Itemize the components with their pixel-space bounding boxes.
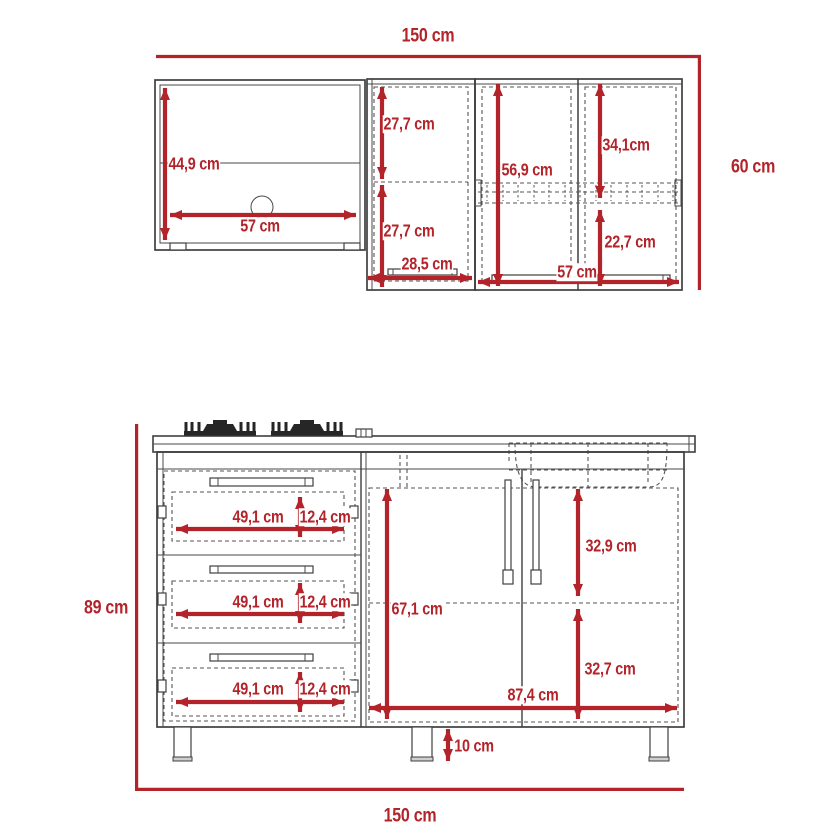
dim-upper-mid-bottom: 27,7 cm bbox=[383, 222, 436, 240]
dim-leg-height: 10 cm bbox=[453, 737, 494, 755]
countertop bbox=[153, 436, 695, 452]
dim-upper-left-height: 44,9 cm bbox=[168, 155, 221, 173]
drawer-handle bbox=[210, 478, 313, 486]
dim-upper-mid-width: 28,5 cm bbox=[401, 255, 454, 273]
dim-drawer2-height: 12,4 cm bbox=[299, 593, 352, 611]
dim-doors-top: 32,9 cm bbox=[585, 537, 638, 555]
dim-upper-right-top: 34,1cm bbox=[602, 136, 651, 154]
dim-drawer2-width: 49,1 cm bbox=[232, 593, 285, 611]
dim-lower-total-width: 150 cm bbox=[383, 806, 437, 826]
dim-upper-total-height: 60 cm bbox=[730, 157, 776, 177]
dim-upper-mid-top: 27,7 cm bbox=[383, 115, 436, 133]
dim-drawer1-height: 12,4 cm bbox=[299, 508, 352, 526]
door-handle bbox=[505, 480, 511, 572]
dim-lower-total-height: 89 cm bbox=[83, 598, 129, 618]
door-handle bbox=[533, 480, 539, 572]
dim-upper-left-width: 57 cm bbox=[239, 217, 280, 235]
cooktop bbox=[184, 420, 372, 437]
dim-upper-total-width: 150 cm bbox=[401, 26, 455, 46]
drawer-handle bbox=[210, 566, 313, 573]
dim-upper-right-height: 56,9 cm bbox=[501, 161, 554, 179]
cabinet-legs bbox=[173, 727, 669, 761]
dim-doors-width: 87,4 cm bbox=[507, 686, 560, 704]
dim-drawer3-width: 49,1 cm bbox=[232, 680, 285, 698]
drawer-handle bbox=[210, 654, 313, 661]
dim-upper-right-bottom: 22,7 cm bbox=[604, 233, 657, 251]
dim-drawer1-width: 49,1 cm bbox=[232, 508, 285, 526]
control-knob bbox=[356, 429, 372, 437]
dim-upper-right-width: 57 cm bbox=[556, 263, 597, 281]
dim-doors-height: 67,1 cm bbox=[391, 600, 444, 618]
upper-right-cabinet bbox=[475, 79, 682, 290]
kitchen-cabinet-dimension-diagram: 150 cm 60 cm 44,9 cm 57 cm 27,7 cm 27,7 … bbox=[0, 0, 840, 840]
dim-drawer3-height: 12,4 cm bbox=[299, 680, 352, 698]
dim-doors-bottom: 32,7 cm bbox=[584, 660, 637, 678]
